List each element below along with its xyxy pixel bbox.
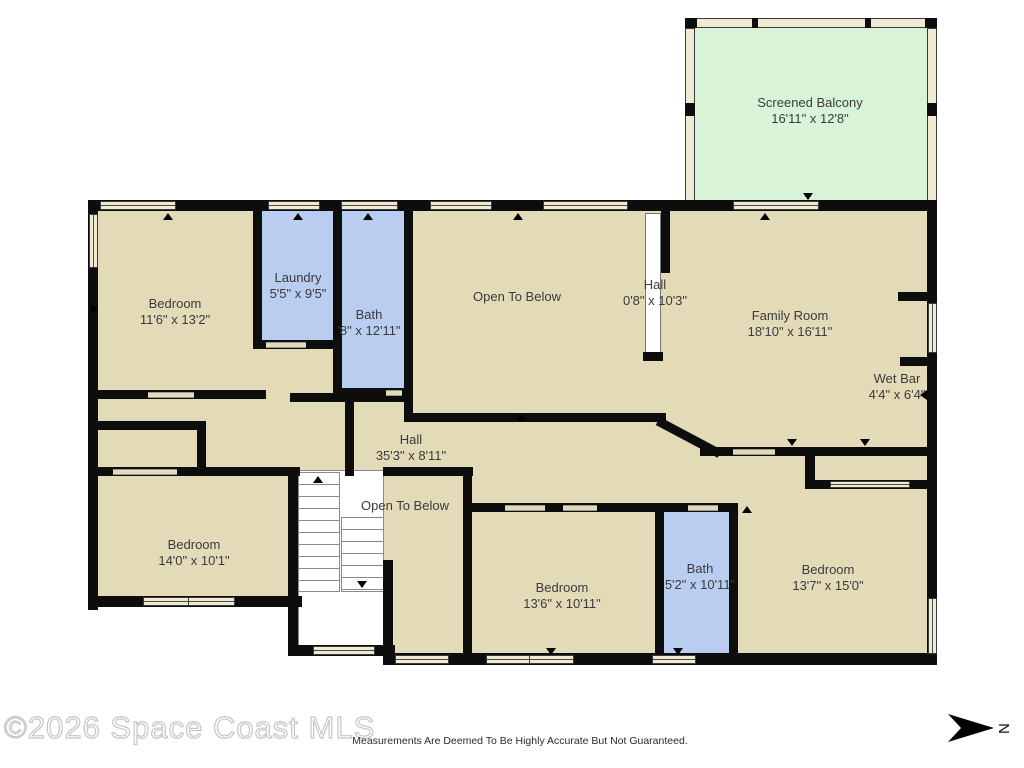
room-label-bath-top: Bath '8" x 12'11" <box>337 307 400 339</box>
room-dims: 14'0" x 10'1" <box>158 553 229 569</box>
room-label-screened-balcony: Screened Balcony 16'11" x 12'8" <box>757 95 863 127</box>
room-name: Bath <box>337 307 400 323</box>
room-name: Family Room <box>748 308 833 324</box>
room-label-hall-small: Hall 0'8" x 10'3" <box>623 277 687 309</box>
dimension-arrow-icon <box>760 213 770 220</box>
room-name: Hall <box>623 277 687 293</box>
wall <box>752 18 758 28</box>
room-name: Screened Balcony <box>757 95 863 111</box>
dimension-arrow-icon <box>742 506 752 513</box>
window <box>188 597 235 606</box>
north-arrow-icon <box>948 712 996 744</box>
wall <box>661 211 670 273</box>
balcony-screen-left <box>685 28 695 208</box>
stairs-up-arrow-icon <box>313 476 323 483</box>
wall <box>898 292 937 301</box>
wall <box>333 211 342 397</box>
wall <box>900 357 937 366</box>
wall <box>925 18 937 28</box>
room-name: Bedroom <box>523 580 601 596</box>
room-name: Bedroom <box>792 562 863 578</box>
room-label-open-to-below-top: Open To Below <box>473 289 561 305</box>
room-dims: 16'11" x 12'8" <box>757 111 863 127</box>
wall <box>383 560 393 656</box>
room-name: Laundry <box>270 270 327 286</box>
room-name: Open To Below <box>361 498 449 514</box>
wall <box>345 400 354 476</box>
window <box>341 201 398 210</box>
exterior-cutout <box>88 607 288 667</box>
dimension-arrow-icon <box>516 414 526 421</box>
door-opening <box>505 505 545 511</box>
door-opening <box>386 390 402 396</box>
door-opening <box>113 469 177 475</box>
dimension-arrow-icon <box>803 193 813 200</box>
room-label-bedroom-top-left: Bedroom 11'6" x 13'2" <box>140 296 210 328</box>
wall <box>927 200 937 665</box>
dimension-arrow-icon <box>513 213 523 220</box>
dimension-arrow-icon <box>860 439 870 446</box>
room-label-bedroom-bottom-center: Bedroom 13'6" x 10'11" <box>523 580 601 612</box>
wall <box>253 211 262 348</box>
wall <box>685 103 695 116</box>
door-opening <box>266 342 306 348</box>
wall <box>685 18 697 28</box>
room-label-bedroom-left: Bedroom 14'0" x 10'1" <box>158 537 229 569</box>
room-dims: 18'10" x 16'11" <box>748 324 833 340</box>
wall <box>643 352 663 361</box>
room-label-bedroom-bottom-right: Bedroom 13'7" x 15'0" <box>792 562 863 594</box>
window <box>486 655 530 664</box>
window <box>652 655 696 664</box>
room-name: Open To Below <box>473 289 561 305</box>
window <box>529 655 574 664</box>
room-dims: 11'6" x 13'2" <box>140 312 210 328</box>
room-dims: 35'3" x 8'11" <box>376 448 446 464</box>
window <box>928 598 937 654</box>
wall <box>88 421 205 430</box>
watermark: ©2026 Space Coast MLS <box>4 710 375 746</box>
wall <box>927 103 937 116</box>
dimension-arrow-icon <box>787 439 797 446</box>
floor-plan: Screened Balcony 16'11" x 12'8" Bedroom … <box>0 0 1024 768</box>
window <box>430 201 492 210</box>
room-label-laundry: Laundry 5'5" x 9'5" <box>270 270 327 302</box>
room-dims: 4'4" x 6'4" <box>869 387 926 403</box>
dimension-arrow-icon <box>673 648 683 655</box>
wall <box>463 467 472 662</box>
wall <box>383 467 473 476</box>
room-dims: '8" x 12'11" <box>337 323 400 339</box>
staircase-flight-up <box>298 472 340 592</box>
door-opening <box>563 505 597 511</box>
wall <box>655 503 664 654</box>
room-name: Wet Bar <box>869 371 926 387</box>
north-label: N <box>995 723 1012 734</box>
room-dims: 13'6" x 10'11" <box>523 596 601 612</box>
north-arrow: N <box>948 712 1009 744</box>
window <box>143 597 189 606</box>
dimension-arrow-icon <box>293 213 303 220</box>
room-dims: 5'5" x 9'5" <box>270 286 327 302</box>
window <box>313 646 375 655</box>
window <box>928 303 937 353</box>
room-name: Bedroom <box>158 537 229 553</box>
disclaimer-text: Measurements Are Deemed To Be Highly Acc… <box>352 735 687 747</box>
window <box>268 201 320 210</box>
dimension-arrow-icon <box>546 648 556 655</box>
wall <box>404 413 666 422</box>
window <box>100 201 176 210</box>
room-bath-top <box>333 211 413 397</box>
room-dims: 0'8" x 10'3" <box>623 293 687 309</box>
dimension-arrow-icon <box>91 304 98 314</box>
closet-slider <box>830 481 910 488</box>
stairs-down-arrow-icon <box>357 581 367 588</box>
door-opening <box>733 449 775 455</box>
room-name: Hall <box>376 432 446 448</box>
door-opening <box>688 505 718 511</box>
dimension-arrow-icon <box>363 213 373 220</box>
room-name: Bath <box>665 561 735 577</box>
dimension-arrow-icon <box>163 213 173 220</box>
room-label-wet-bar: Wet Bar 4'4" x 6'4" <box>869 371 926 403</box>
wall <box>288 467 298 656</box>
window <box>395 655 449 664</box>
window <box>543 201 628 210</box>
balcony-door <box>733 201 819 210</box>
balcony-screen-top <box>685 18 937 28</box>
room-dims: 13'7" x 15'0" <box>792 578 863 594</box>
wall <box>404 211 413 422</box>
room-label-open-to-below-stairs: Open To Below <box>361 498 449 514</box>
room-dims: 5'2" x 10'11" <box>665 577 735 593</box>
window <box>89 214 98 268</box>
room-label-hall-main: Hall 35'3" x 8'11" <box>376 432 446 464</box>
wall <box>865 18 871 28</box>
room-label-bath-bottom: Bath 5'2" x 10'11" <box>665 561 735 593</box>
room-name: Bedroom <box>140 296 210 312</box>
room-label-family-room: Family Room 18'10" x 16'11" <box>748 308 833 340</box>
balcony-screen-right <box>927 28 937 208</box>
door-opening <box>148 392 194 398</box>
